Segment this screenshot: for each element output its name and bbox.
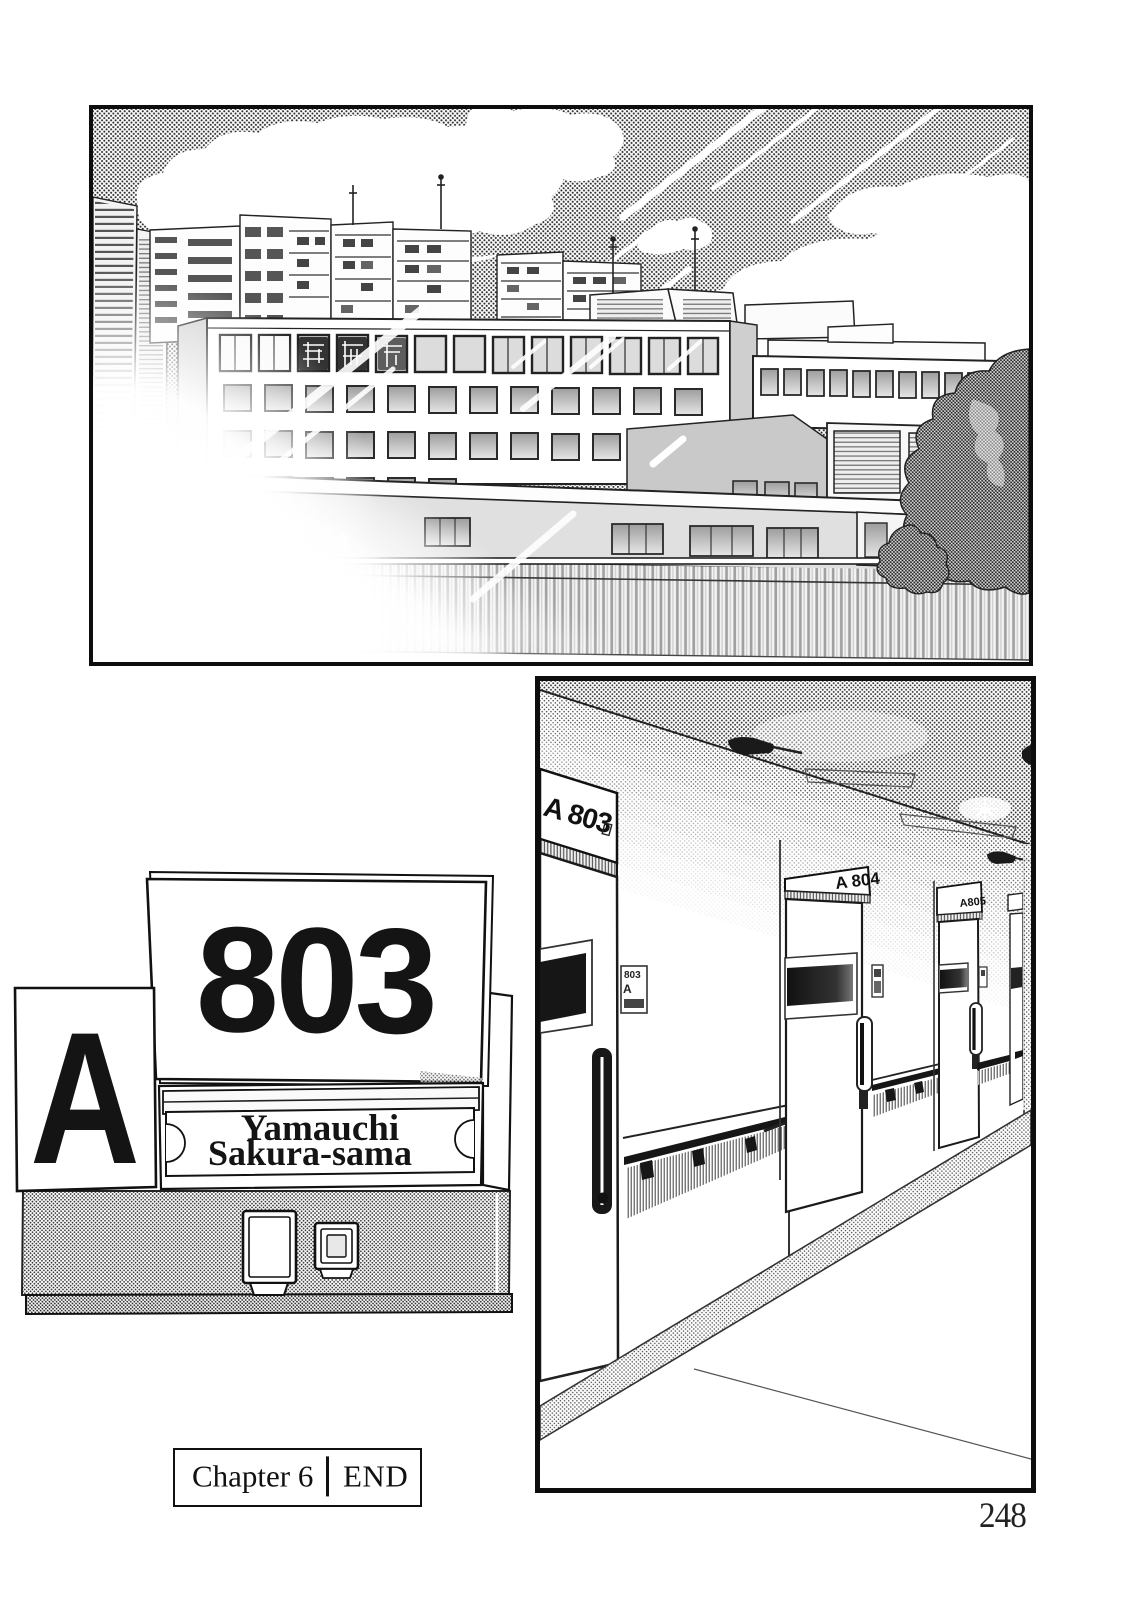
- svg-text:803: 803: [624, 970, 641, 981]
- svg-text:A: A: [623, 982, 632, 996]
- svg-text:Sakura-sama: Sakura-sama: [208, 1133, 412, 1173]
- svg-text:A: A: [30, 993, 140, 1203]
- svg-text:803: 803: [195, 895, 435, 1065]
